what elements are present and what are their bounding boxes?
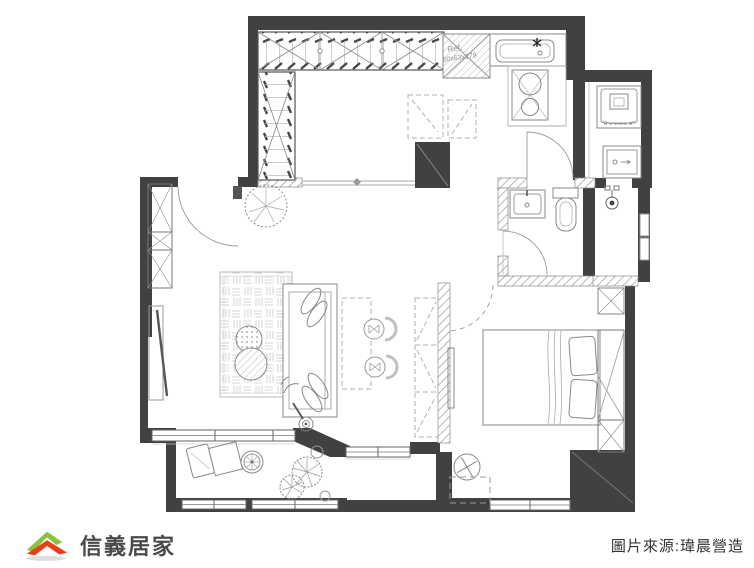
bathroom-sink — [510, 190, 545, 218]
lounge-chair — [186, 437, 242, 481]
bathroom — [503, 188, 578, 275]
exterior-unit — [598, 288, 624, 314]
logo-triangle-icon — [24, 528, 70, 562]
kitchen-sink — [490, 34, 566, 66]
dining-chair-2 — [365, 356, 397, 378]
living-south-window — [152, 430, 295, 441]
dining-area — [342, 298, 397, 389]
faucet-icon — [533, 38, 541, 47]
washing-machine — [597, 86, 641, 128]
open-boundary — [302, 178, 415, 186]
bedroom-wardrobe — [598, 330, 624, 452]
entry-plant — [245, 185, 287, 227]
image-source-caption: 圖片來源:瑋晨營造 — [611, 535, 744, 556]
shower-head-icon — [605, 186, 619, 209]
bedroom-door-arc — [447, 285, 493, 331]
brand-name: 信義居家 — [80, 529, 176, 561]
toilet — [553, 188, 578, 231]
balcony-table — [241, 451, 263, 473]
balcony-plants — [280, 446, 330, 501]
entry-door — [178, 186, 242, 246]
laundry-room — [589, 82, 641, 178]
bed — [483, 330, 600, 425]
dashed-appliance-slots — [408, 95, 476, 138]
se-dashed-wardrobe — [415, 298, 438, 437]
brand-logo: 信義居家 — [24, 528, 176, 562]
bathroom-door-arc — [503, 231, 547, 275]
balcony-window-a — [182, 500, 246, 509]
shower-room — [598, 186, 624, 314]
refrigerator: Ref. 60x63x178 — [442, 34, 490, 78]
kitchen-door-arc — [527, 132, 573, 178]
living-room — [148, 184, 438, 437]
page: Ref. 60x63x178 — [0, 0, 754, 568]
fan-stool — [454, 454, 480, 480]
mop-sink — [603, 146, 641, 178]
living-se-window — [346, 447, 410, 457]
bedroom-south-window — [490, 500, 570, 510]
dining-chair-1 — [364, 318, 396, 340]
dining-table-dashed — [342, 298, 371, 389]
sofa — [283, 284, 337, 417]
pouf-large — [235, 348, 267, 380]
stove — [508, 66, 566, 126]
floor-plan: Ref. 60x63x178 — [0, 0, 754, 568]
